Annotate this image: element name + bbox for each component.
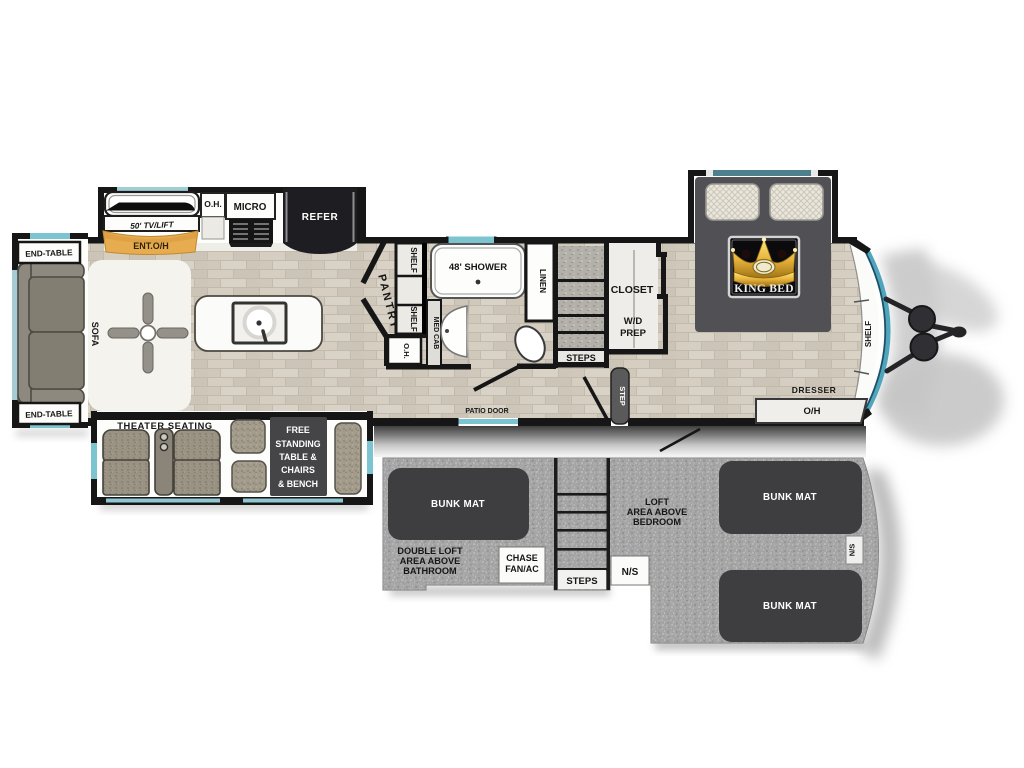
svg-text:MICRO: MICRO [234, 202, 267, 213]
svg-text:REFER: REFER [302, 212, 339, 223]
svg-text:PREP: PREP [620, 328, 647, 339]
svg-text:DOUBLE LOFT: DOUBLE LOFT [397, 546, 463, 556]
svg-text:BATHROOM: BATHROOM [403, 566, 457, 576]
svg-text:LOFT: LOFT [645, 497, 669, 507]
svg-text:CLOSET: CLOSET [611, 284, 654, 296]
svg-text:O.H.: O.H. [204, 199, 221, 209]
svg-text:STANDING: STANDING [275, 439, 320, 449]
svg-text:PATIO DOOR: PATIO DOOR [465, 408, 508, 415]
svg-text:BUNK MAT: BUNK MAT [763, 601, 817, 612]
svg-text:N/S: N/S [848, 544, 857, 557]
svg-text:BEDROOM: BEDROOM [633, 517, 681, 527]
svg-text:FREE: FREE [286, 425, 310, 435]
svg-text:MED CAB: MED CAB [432, 317, 439, 350]
svg-text:50' TV/LIFT: 50' TV/LIFT [130, 220, 175, 231]
svg-text:END-TABLE: END-TABLE [25, 247, 73, 259]
svg-text:STEPS: STEPS [566, 576, 597, 587]
svg-text:END-TABLE: END-TABLE [25, 408, 73, 420]
svg-text:SHELF: SHELF [864, 321, 873, 347]
svg-text:FAN/AC: FAN/AC [505, 564, 539, 574]
svg-text:CHASE: CHASE [506, 553, 538, 563]
svg-text:N/S: N/S [622, 567, 639, 578]
svg-text:SHELF: SHELF [409, 247, 418, 273]
svg-text:BUNK MAT: BUNK MAT [431, 499, 485, 510]
svg-text:LINEN: LINEN [538, 269, 547, 293]
svg-text:TABLE &: TABLE & [279, 452, 317, 462]
svg-text:48' SHOWER: 48' SHOWER [449, 262, 507, 273]
svg-text:SOFA: SOFA [90, 322, 100, 347]
svg-text:AREA ABOVE: AREA ABOVE [627, 507, 688, 517]
svg-text:SHELF: SHELF [409, 306, 418, 332]
svg-text:DRESSER: DRESSER [792, 385, 837, 395]
svg-text:KING BED: KING BED [734, 283, 794, 295]
svg-text:STEPS: STEPS [566, 353, 596, 363]
svg-text:STEP: STEP [618, 386, 627, 406]
svg-text:O.H.: O.H. [402, 343, 411, 358]
svg-text:ENT.O/H: ENT.O/H [133, 241, 169, 251]
svg-text:& BENCH: & BENCH [278, 479, 318, 489]
svg-text:W/D: W/D [624, 316, 643, 327]
svg-text:BUNK MAT: BUNK MAT [763, 492, 817, 503]
svg-text:AREA ABOVE: AREA ABOVE [400, 556, 461, 566]
svg-text:O/H: O/H [804, 406, 821, 417]
svg-text:CHAIRS: CHAIRS [281, 465, 315, 475]
